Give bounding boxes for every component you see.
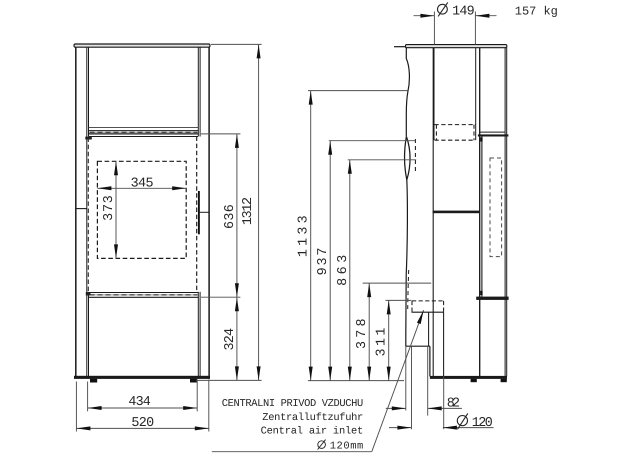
svg-text:520: 520 (131, 416, 154, 431)
svg-text:120mm: 120mm (330, 441, 364, 453)
svg-text:863: 863 (336, 255, 351, 286)
svg-text:373: 373 (102, 195, 117, 221)
svg-text:82: 82 (447, 396, 460, 411)
svg-text:149: 149 (452, 4, 475, 19)
svg-text:324: 324 (223, 328, 238, 351)
svg-text:311: 311 (375, 328, 390, 357)
svg-text:636: 636 (223, 204, 238, 229)
svg-text:937: 937 (316, 248, 331, 276)
svg-text:Central air inlet: Central air inlet (261, 425, 364, 437)
svg-text:345: 345 (131, 176, 154, 191)
svg-text:CENTRALNI PRIVOD VZDUCHU: CENTRALNI PRIVOD VZDUCHU (222, 398, 364, 410)
svg-text:434: 434 (128, 395, 151, 410)
svg-text:Zentralluftzufuhr: Zentralluftzufuhr (262, 412, 363, 424)
svg-text:120: 120 (472, 416, 493, 431)
svg-text:157 kg: 157 kg (515, 5, 558, 19)
svg-text:378: 378 (355, 318, 370, 349)
svg-text:1312: 1312 (241, 197, 256, 225)
